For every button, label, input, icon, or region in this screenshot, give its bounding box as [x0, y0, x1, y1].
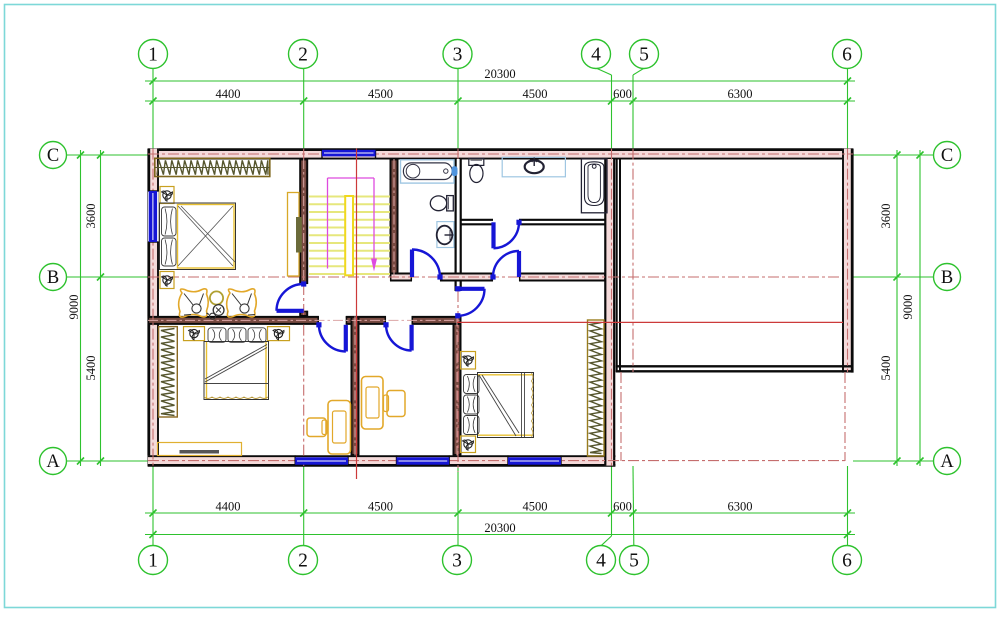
svg-text:6300: 6300 — [728, 87, 753, 101]
svg-text:A: A — [940, 452, 954, 472]
svg-text:A: A — [46, 452, 60, 472]
svg-text:2: 2 — [298, 45, 308, 66]
svg-text:4400: 4400 — [216, 500, 241, 514]
svg-text:4500: 4500 — [523, 87, 548, 101]
svg-text:4400: 4400 — [216, 87, 241, 101]
svg-text:9000: 9000 — [901, 295, 915, 320]
svg-text:20300: 20300 — [484, 521, 515, 535]
svg-text:4500: 4500 — [368, 87, 393, 101]
svg-text:6: 6 — [842, 45, 852, 66]
svg-text:600: 600 — [613, 87, 632, 101]
svg-text:2: 2 — [298, 551, 308, 572]
svg-text:9000: 9000 — [67, 295, 81, 320]
svg-text:5: 5 — [629, 551, 639, 572]
svg-text:4: 4 — [591, 45, 601, 66]
svg-text:C: C — [47, 146, 59, 166]
svg-text:3: 3 — [453, 45, 463, 66]
svg-text:5400: 5400 — [84, 356, 98, 381]
svg-text:5400: 5400 — [879, 356, 893, 381]
svg-text:6300: 6300 — [728, 500, 753, 514]
svg-text:B: B — [941, 268, 953, 288]
svg-text:3600: 3600 — [84, 204, 98, 229]
svg-text:B: B — [47, 268, 59, 288]
svg-text:20300: 20300 — [484, 67, 515, 81]
svg-text:1: 1 — [148, 551, 158, 572]
svg-text:4500: 4500 — [523, 500, 548, 514]
svg-text:4500: 4500 — [368, 500, 393, 514]
svg-text:5: 5 — [639, 45, 649, 66]
svg-text:1: 1 — [148, 45, 158, 66]
svg-text:600: 600 — [613, 500, 632, 514]
svg-text:4: 4 — [596, 551, 606, 572]
svg-text:6: 6 — [842, 551, 852, 572]
svg-text:C: C — [941, 146, 953, 166]
svg-text:3600: 3600 — [879, 204, 893, 229]
svg-text:3: 3 — [452, 551, 462, 572]
